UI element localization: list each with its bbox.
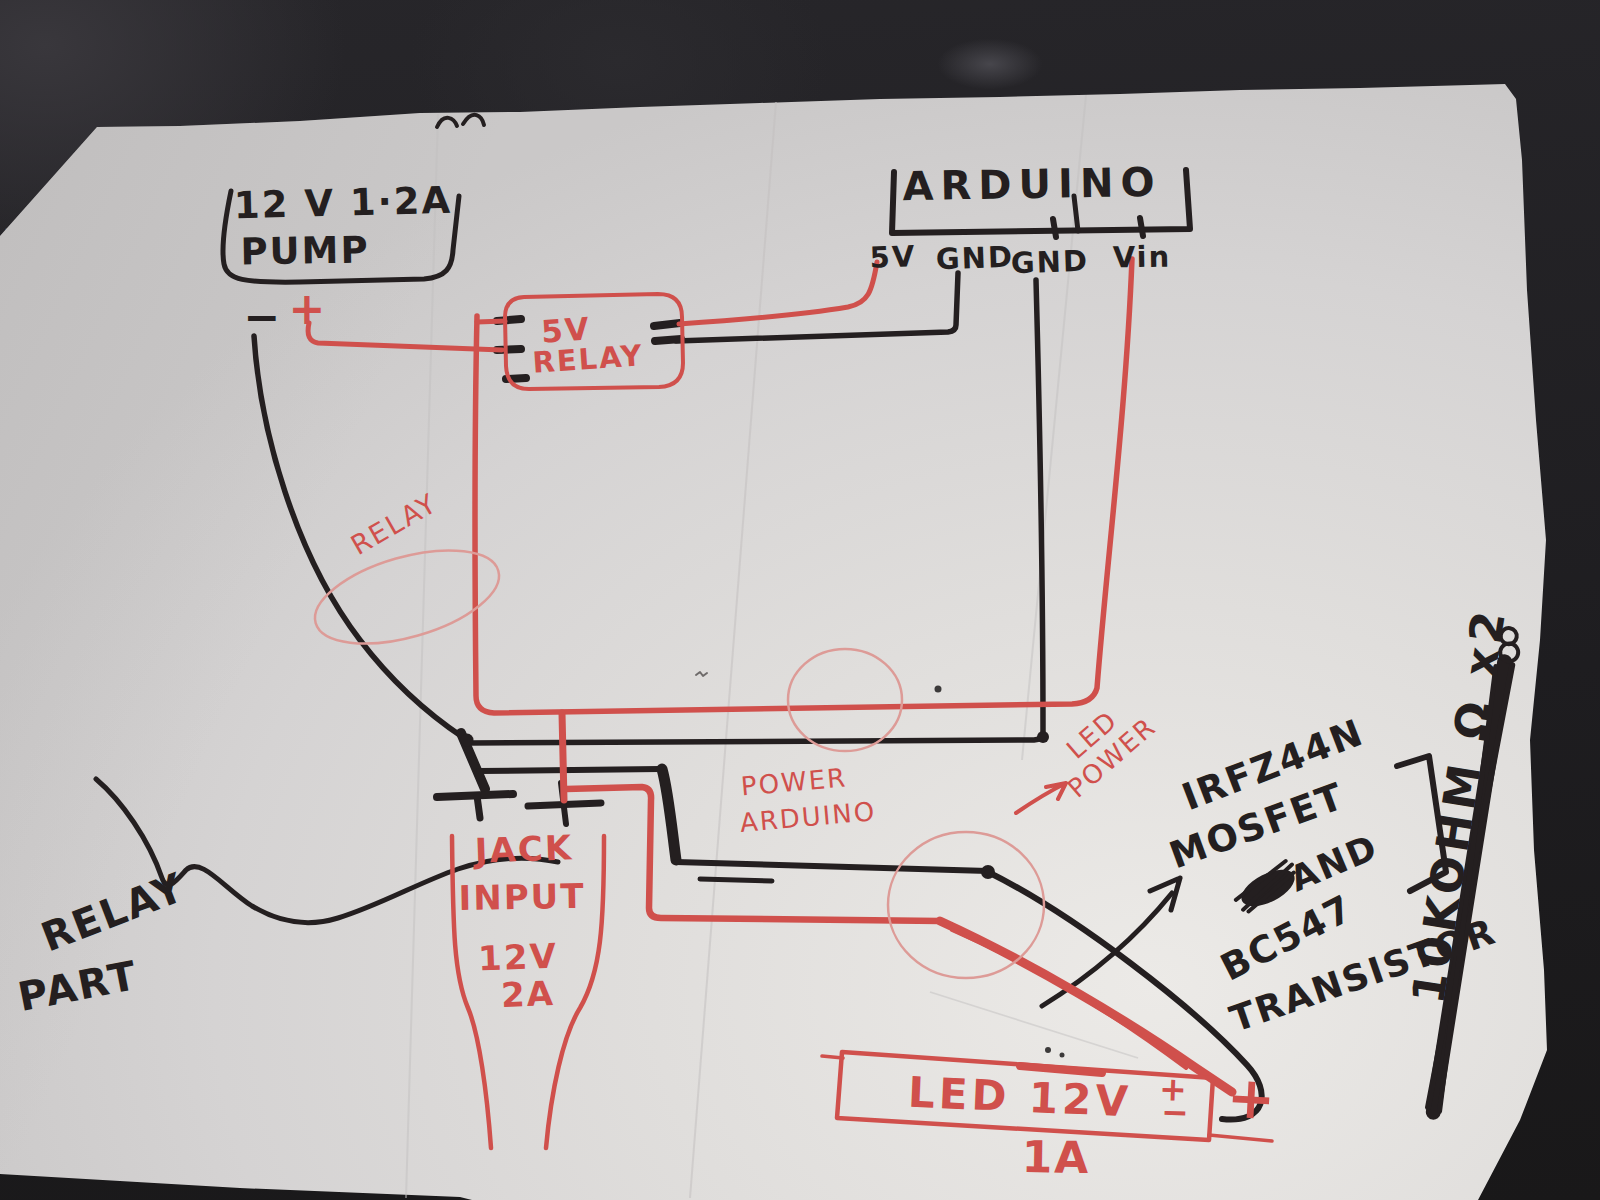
mosfet-arrow (1042, 893, 1172, 1006)
arduino-title: ARDUINO (902, 159, 1162, 210)
pump-plus-terminal: + (289, 283, 328, 334)
arduino-pin-5v: 5V (869, 239, 917, 275)
arduino-pin-gnd2: GND (1010, 244, 1089, 281)
pump-plus-wire (308, 323, 502, 350)
pump-label-line1: 12 V 1·2A (233, 179, 452, 228)
hand-drawn-circuit (0, 0, 1600, 1200)
led-minus-terminal: − (1161, 1092, 1192, 1132)
jack-label-line1: JACK (474, 827, 574, 870)
arduino-pin-gnd1: GND (935, 240, 1014, 277)
led-box-label: LED 12V (907, 1068, 1133, 1127)
gnd1-wire (676, 273, 958, 341)
relay-5v-wire (679, 262, 877, 324)
jack-label-line3: 12V (478, 936, 559, 979)
led-big-plus: + (1225, 1063, 1279, 1134)
jack-label-line4: 2A (500, 973, 555, 1015)
relay-circle (305, 532, 510, 661)
arduino-pin-vin: Vin (1112, 239, 1171, 274)
jack-label-line2: INPUT (458, 876, 586, 918)
mosfet-gate-wire (479, 769, 660, 771)
pump-label-line2: PUMP (240, 228, 370, 273)
mosfet-junction-circle (888, 832, 1044, 978)
led-current-label: 1A (1021, 1131, 1091, 1183)
torn-edge-writing (437, 115, 484, 127)
pump-minus-terminal: − (244, 291, 283, 342)
junction-circle (788, 649, 902, 751)
led-power-arrow (1016, 783, 1066, 813)
